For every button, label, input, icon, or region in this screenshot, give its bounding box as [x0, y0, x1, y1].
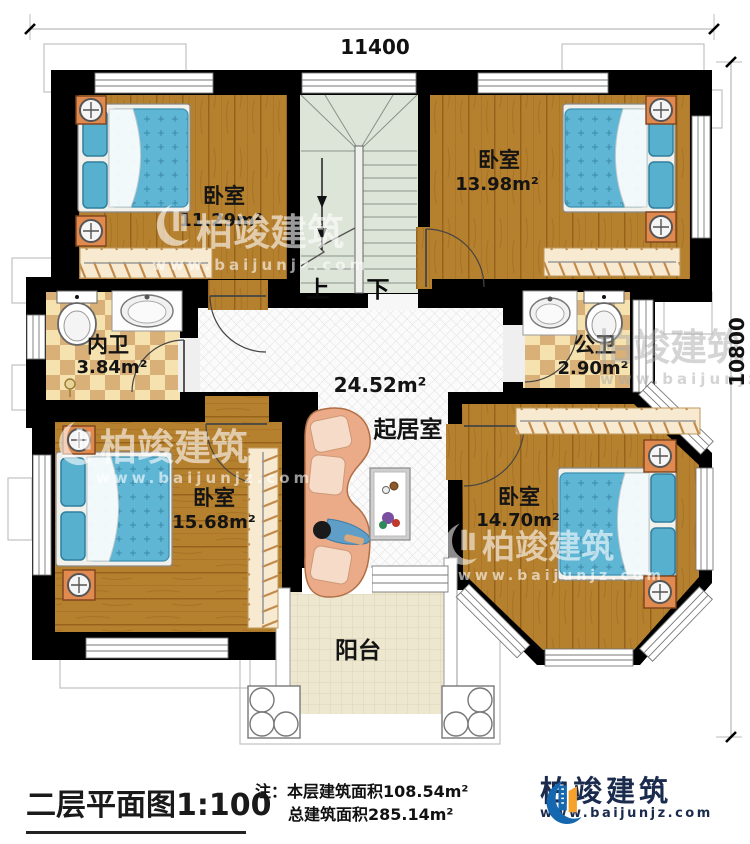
dimension-right-value: 10800 — [725, 317, 749, 387]
dimension-top-value: 11400 — [340, 35, 410, 59]
svg-text:柏竣建筑: 柏竣建筑 — [482, 527, 614, 566]
window — [478, 73, 608, 93]
svg-text:www.baijunjz.com: www.baijunjz.com — [152, 256, 369, 274]
svg-text:www.baijunjz.com: www.baijunjz.com — [458, 568, 665, 584]
wardrobe — [544, 248, 680, 276]
bedroom-tr-name: 卧室 — [478, 148, 520, 172]
svg-text:柏竣建筑: 柏竣建筑 — [100, 426, 248, 469]
stair-up-label: 上 — [307, 277, 330, 303]
living-area: 24.52m² — [334, 373, 427, 397]
floor-plan-drawing: 卧室 11.29m² 卧室 13.98m² 内卫 3.84m² 公卫 2.90m… — [0, 0, 750, 758]
bedroom-bl-area: 15.68m² — [172, 512, 256, 533]
bath-inner-name: 内卫 — [87, 333, 129, 357]
nightstand — [76, 216, 106, 246]
bedroom-tr-area: 13.98m² — [455, 174, 539, 195]
window — [33, 455, 51, 575]
nightstand — [76, 96, 106, 124]
svg-text:柏竣建筑: 柏竣建筑 — [196, 211, 344, 254]
window-balcony-door — [372, 566, 448, 592]
nightstand — [644, 440, 676, 472]
dimension-top: 11400 — [25, 14, 719, 59]
coffee-table — [370, 468, 410, 540]
brand-logo: 柏竣建筑 www.baijunjz.com — [540, 776, 713, 821]
floor-plan-page: 卧室 11.29m² 卧室 13.98m² 内卫 3.84m² 公卫 2.90m… — [0, 0, 750, 844]
sink — [112, 291, 182, 331]
window — [27, 315, 45, 359]
bedroom-br-name: 卧室 — [498, 485, 540, 509]
bath-inner-area: 3.84m² — [76, 357, 147, 378]
bedroom-tl-name: 卧室 — [203, 184, 245, 208]
window — [696, 468, 713, 570]
balcony-column-right — [442, 686, 494, 738]
wardrobe — [516, 408, 700, 434]
nightstand — [646, 212, 676, 242]
title-block: 二层平面图1:100 注：本层建筑面积108.54m² 总建筑面积285.14m… — [0, 758, 750, 844]
window — [86, 638, 228, 658]
balcony-name: 阳台 — [335, 637, 381, 664]
balcony-column-left — [248, 686, 300, 738]
window — [302, 73, 416, 93]
living-name: 起居室 — [374, 416, 443, 443]
window — [95, 73, 213, 93]
dimension-right: 10800 — [716, 57, 749, 742]
plan-title: 二层平面图1:100 — [26, 780, 246, 834]
sink — [523, 291, 577, 335]
note-line-2: 总建筑面积285.14m² — [255, 803, 468, 826]
nightstand — [63, 570, 95, 600]
stair-down-label: 下 — [367, 277, 390, 303]
nightstand — [646, 96, 676, 124]
svg-text:www.baijunjz.com: www.baijunjz.com — [96, 469, 313, 487]
window — [545, 649, 633, 666]
note-line-1: 注：本层建筑面积108.54m² — [255, 780, 468, 803]
brand-logo-icon — [540, 776, 588, 830]
svg-text:柏竣建筑: 柏竣建筑 — [596, 326, 744, 369]
window — [692, 116, 710, 238]
bedroom-bl-name: 卧室 — [193, 486, 235, 510]
plan-notes: 注：本层建筑面积108.54m² 总建筑面积285.14m² — [255, 780, 468, 826]
